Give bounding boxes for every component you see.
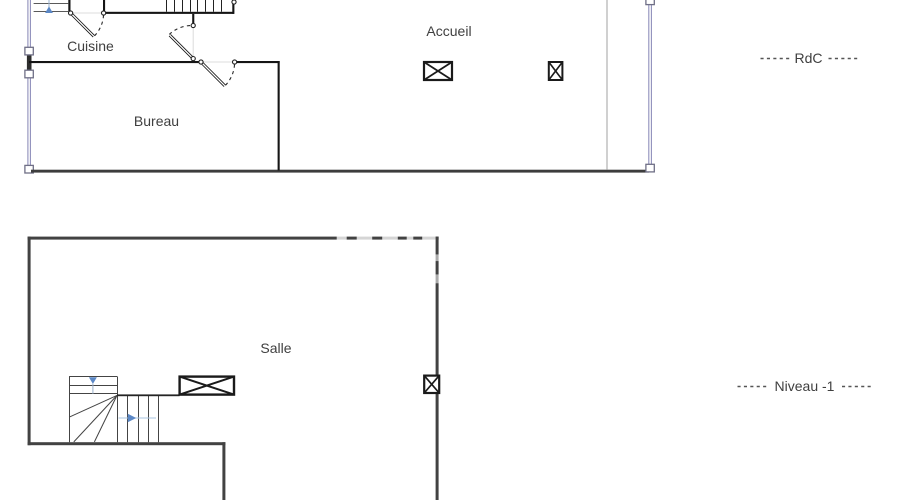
svg-text:Niveau -1: Niveau -1 [775,378,835,394]
svg-text:Salle: Salle [260,340,291,356]
svg-text:RdC: RdC [794,50,822,66]
svg-text:Cuisine: Cuisine [67,38,114,54]
svg-text:Accueil: Accueil [426,23,471,39]
svg-text:Bureau: Bureau [134,113,179,129]
